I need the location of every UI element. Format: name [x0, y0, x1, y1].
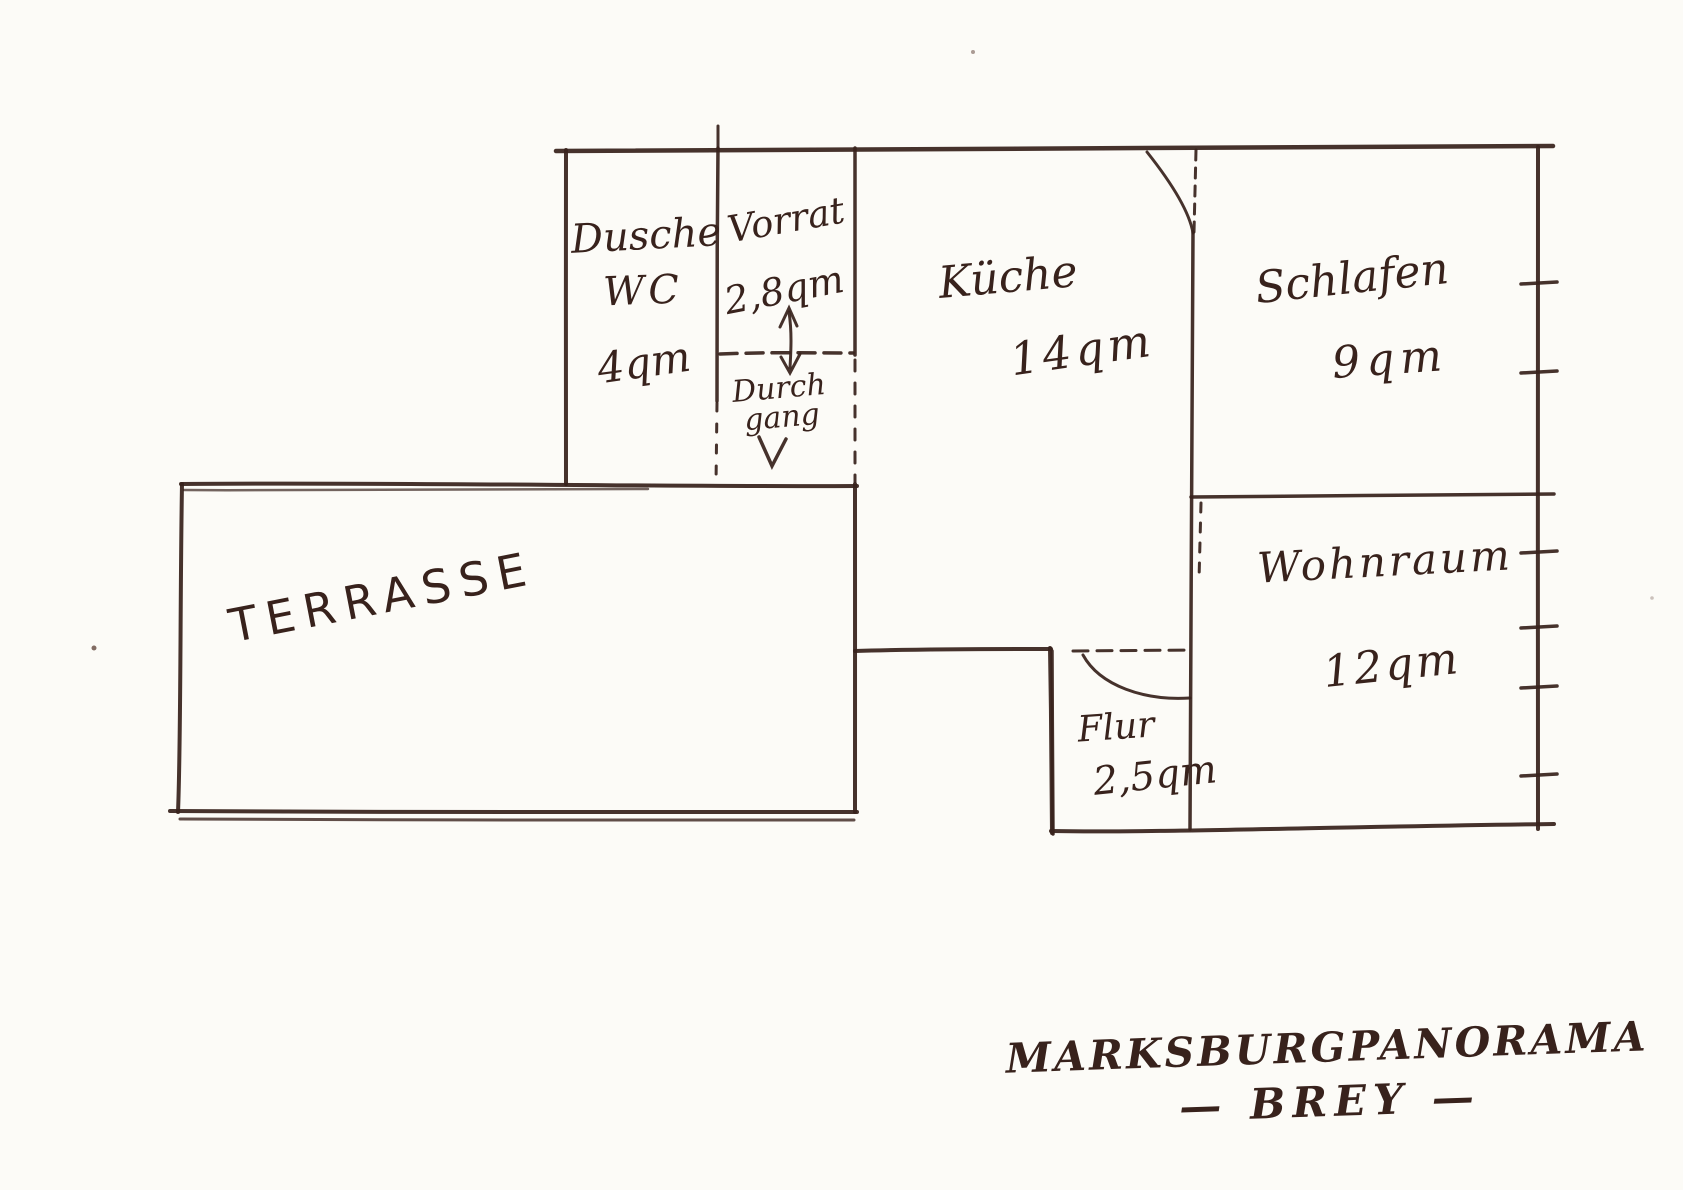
terrasse-top-wall — [181, 484, 857, 487]
terrasse-bottom-wall — [170, 811, 857, 812]
room-area-schlafen: 9qm — [1331, 334, 1450, 386]
arrow-shaft — [789, 312, 791, 368]
terrasse-bottom-wall-double — [180, 819, 854, 820]
tick-wohnraum-2 — [1521, 626, 1557, 628]
room-label-durchgang-2: gang — [743, 400, 821, 436]
terrasse-walls — [170, 484, 857, 820]
wall-kueche-south — [855, 649, 1051, 651]
wall-flur-left — [1052, 651, 1053, 834]
speck-left — [92, 646, 97, 651]
room-label-dusche: Dusche — [570, 212, 722, 260]
wall-right — [1537, 147, 1538, 829]
room-label-flur: Flur — [1076, 707, 1155, 748]
wall-top — [556, 146, 1553, 151]
floor-plan-scan: Dusche WC 4qm Vorrat 2,8qm Durch gang Kü… — [0, 0, 1683, 1190]
wall-left-dusche — [566, 150, 567, 484]
tick-wohnraum-4 — [1521, 774, 1557, 776]
wall-kueche-west — [855, 484, 856, 812]
flur-door-opening-dashed — [1073, 650, 1192, 651]
tick-schlafen-2 — [1521, 371, 1557, 373]
kueche-door-opening-dashed — [1194, 150, 1196, 232]
wall-vorrat-durchgang-dashed — [720, 353, 853, 354]
plan-subtitle: — BREY — — [1179, 1076, 1482, 1129]
terrasse-left-wall — [178, 484, 182, 812]
wohnraum-door-dashed — [1199, 503, 1201, 580]
kueche-door-arc — [1147, 152, 1193, 233]
wall-dusche-vorrat — [717, 148, 718, 401]
wall-kueche-schlafen — [1190, 232, 1193, 829]
wall-bottom — [1051, 824, 1554, 831]
arrow-big-v — [759, 437, 786, 466]
doors — [1073, 150, 1201, 698]
speck-top — [971, 50, 975, 54]
wall-dusche-vorrat-dashed — [716, 403, 717, 484]
room-label-dusche-wc: WC — [602, 270, 683, 313]
tick-schlafen-1 — [1521, 282, 1557, 284]
terrasse-top-wall-double — [184, 489, 648, 490]
tick-wohnraum-3 — [1521, 686, 1557, 688]
room-area-dusche: 4qm — [595, 336, 693, 391]
room-label-kueche: Küche — [937, 250, 1080, 306]
speck-right — [1650, 596, 1654, 600]
tick-wohnraum-1 — [1521, 551, 1557, 553]
flur-door-arc — [1083, 655, 1190, 698]
wall-schlafen-wohnraum-divider — [1191, 494, 1554, 497]
